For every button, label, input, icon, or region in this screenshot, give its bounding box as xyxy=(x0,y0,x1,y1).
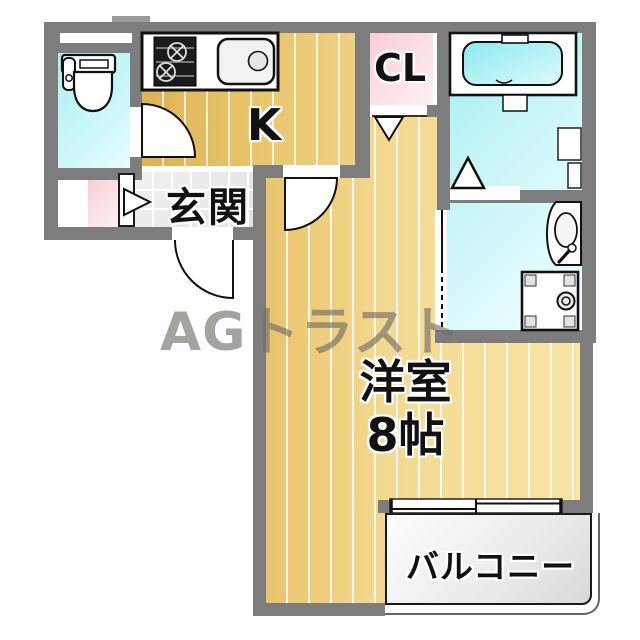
entrance-label: 玄関 xyxy=(138,175,278,233)
closet-threshold xyxy=(372,105,427,117)
entrance-storage-floor xyxy=(58,180,88,227)
entrance-closet-floor xyxy=(88,180,118,227)
wall-toilet-right-upper xyxy=(130,33,142,107)
kitchen-door-opening xyxy=(283,165,340,178)
wall-left xyxy=(44,22,58,240)
balcony-label: バルコニー xyxy=(393,540,588,588)
closet-label: CL xyxy=(363,46,437,90)
main-room-label: 洋室 8帖 xyxy=(318,356,493,462)
wall-top xyxy=(44,22,596,33)
wall-closet-stub xyxy=(427,105,437,117)
bathroom-floor xyxy=(450,33,582,190)
wall-room-right xyxy=(580,343,593,513)
toilet-window-opening xyxy=(60,33,132,43)
kitchen-label: K xyxy=(234,100,294,151)
wall-window-left-stub xyxy=(378,500,392,513)
entrance-storage-door xyxy=(118,173,135,227)
washroom-floor xyxy=(447,203,582,330)
toilet-room-floor xyxy=(58,43,130,168)
main-room-size: 8帖 xyxy=(366,408,444,462)
toilet-door-opening xyxy=(130,107,142,157)
wall-right-outer xyxy=(582,22,596,343)
agency-watermark: AGトラスト xyxy=(160,290,461,366)
entrance-step-edge xyxy=(142,166,253,171)
wall-bath-left xyxy=(437,22,450,210)
floorplan-canvas: K 玄関 CL 洋室 8帖 バルコニー AGトラスト xyxy=(0,0,640,640)
wall-room-bottom xyxy=(253,603,385,616)
wall-window-right-stub xyxy=(562,500,593,513)
bath-threshold xyxy=(450,186,520,200)
